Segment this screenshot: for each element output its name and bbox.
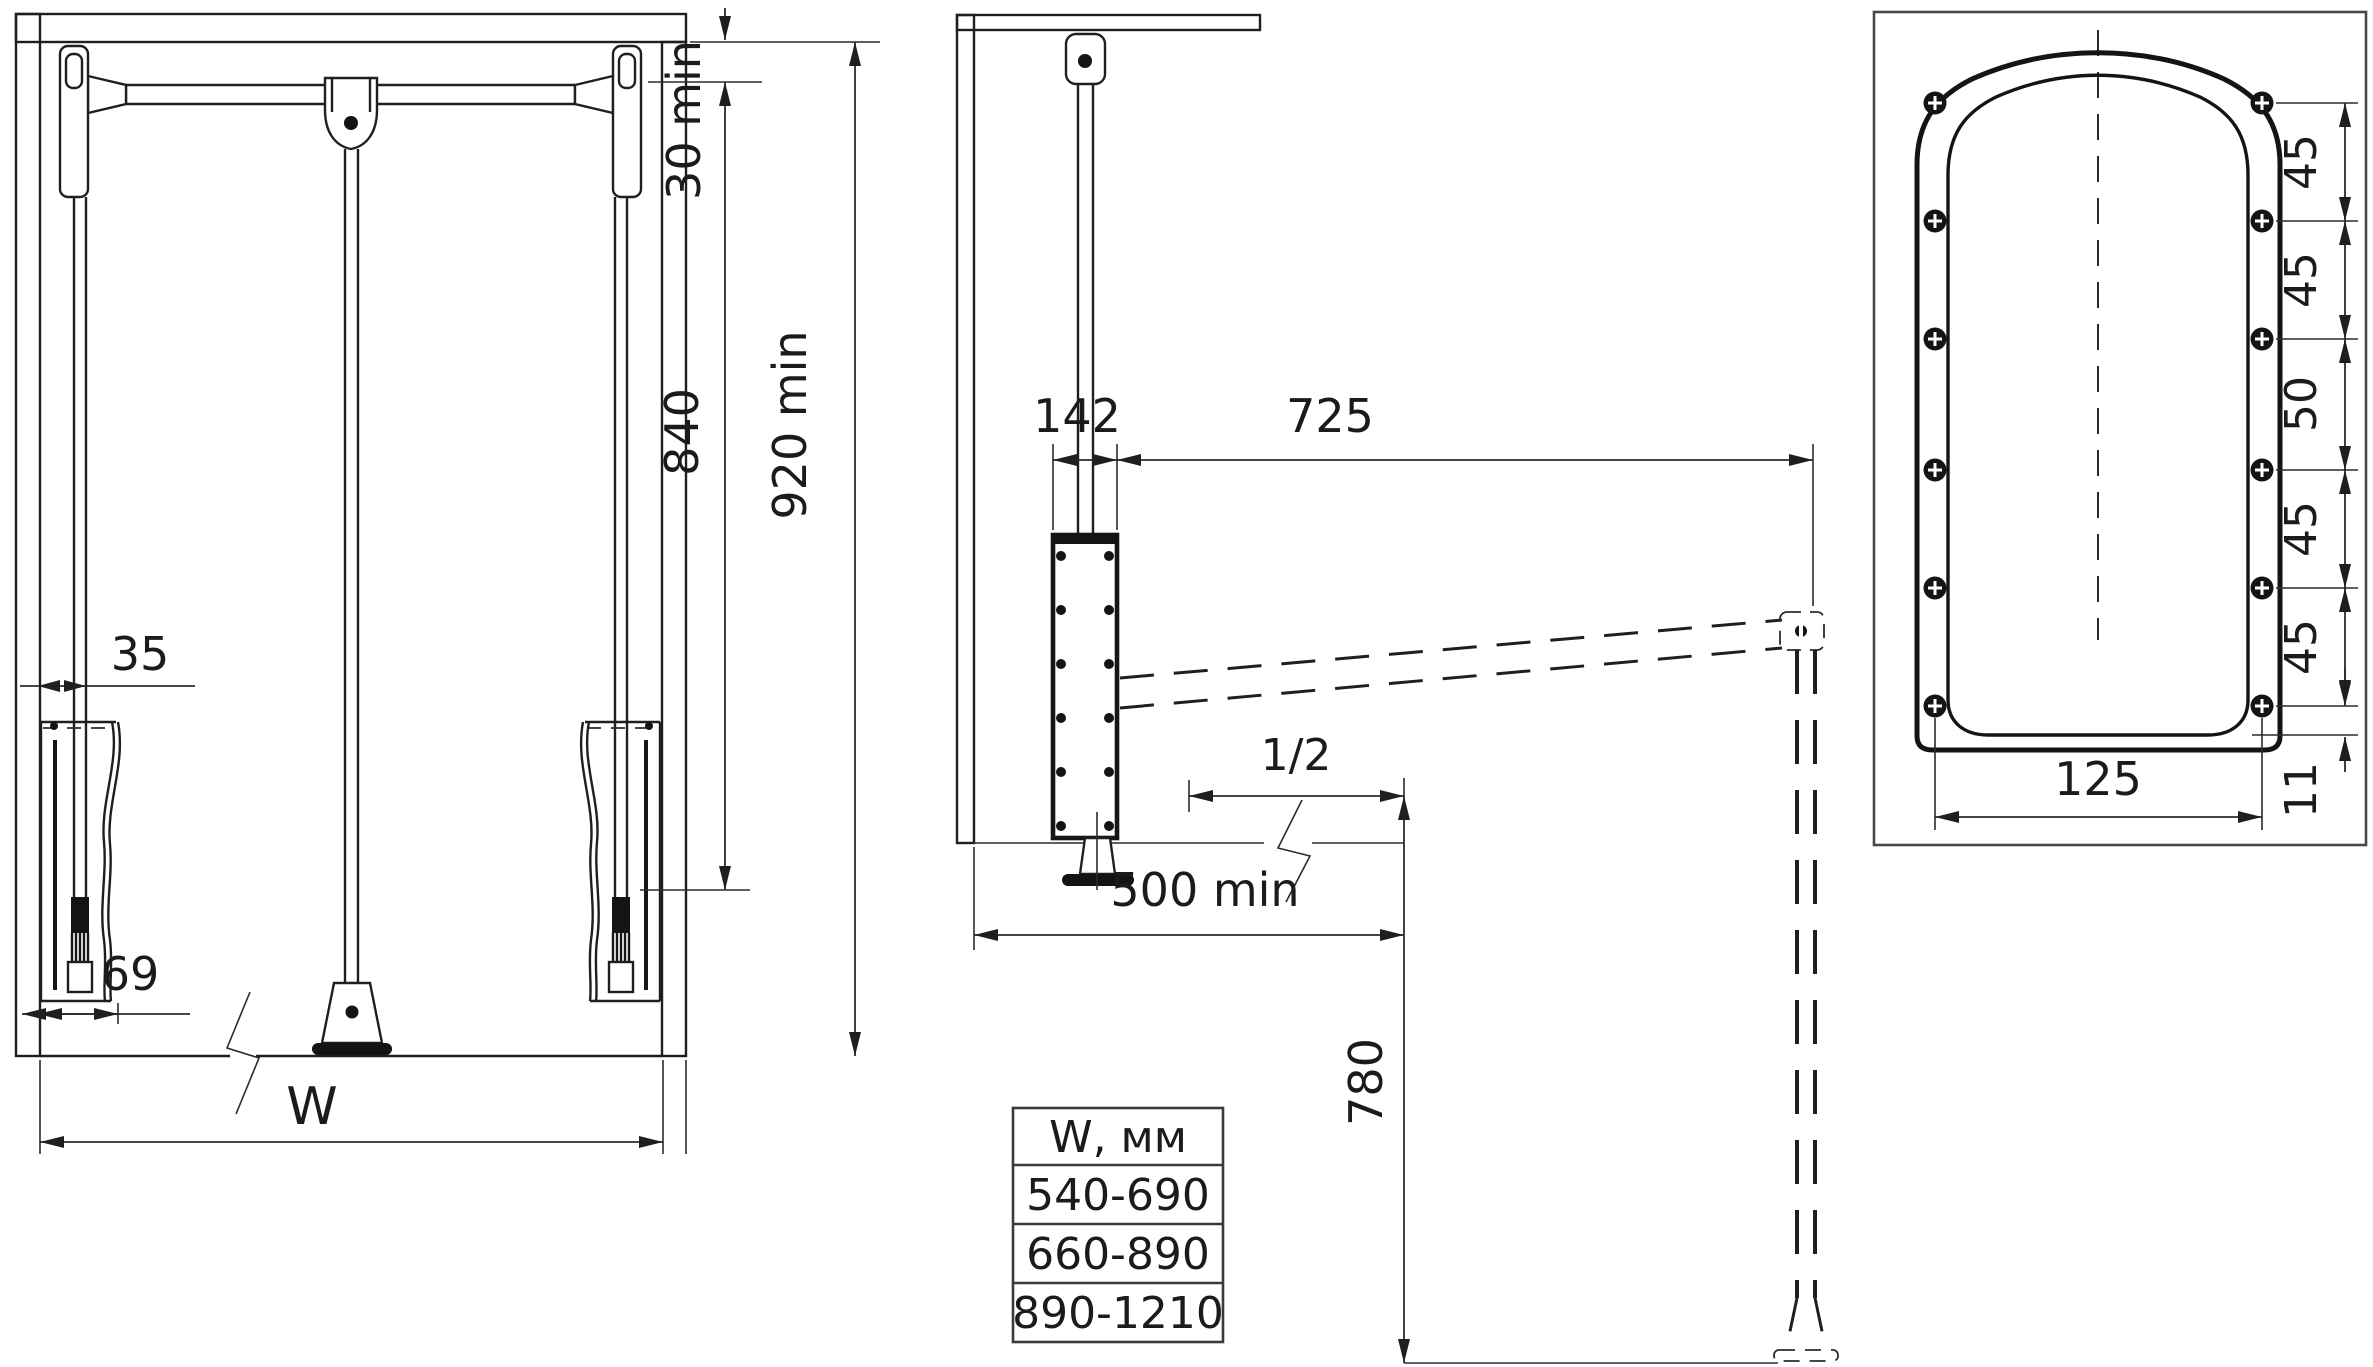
pivot-dot (344, 116, 358, 130)
dim-label-11: 11 (2276, 762, 2327, 818)
dim-lowered-height: 780 (1339, 778, 1404, 1363)
cabinet-top-panel-side (957, 15, 1260, 30)
center-bracket (325, 78, 377, 149)
rail-left-cone (88, 76, 126, 113)
spring-block (71, 897, 89, 933)
dim-label-840: 840 (655, 388, 709, 476)
dim-min-height: 920 min (763, 42, 855, 1056)
dim-label-w: W (286, 1077, 337, 1137)
dim-arm-drop: 840 (640, 82, 750, 890)
lift-mechanism-body (1053, 535, 1134, 886)
side-view: 142 725 1/2 500 min 780 (957, 15, 1838, 1363)
dim-min-depth: 500 min (974, 847, 1404, 950)
dim-label-45-2: 45 (2276, 252, 2327, 308)
table-row: 540-690 (1026, 1170, 1210, 1221)
cabinet-left-wall (16, 14, 40, 1056)
dim-label-725: 725 (1286, 389, 1374, 443)
right-lift-arm (615, 197, 627, 897)
dim-label-780: 780 (1339, 1038, 1393, 1126)
table-row: 660-890 (1026, 1229, 1210, 1280)
dim-label-920min: 920 min (763, 330, 817, 519)
dim-extension-reach: 725 (1117, 389, 1813, 606)
spring-coil (613, 933, 629, 962)
dim-label-45-1: 45 (2276, 134, 2327, 190)
cabinet-back-wall (957, 15, 974, 843)
cabinet-top-panel (16, 14, 686, 42)
dim-label-50: 50 (2276, 376, 2327, 432)
technical-drawing-page: 35 69 W 30 min 840 (0, 0, 2373, 1367)
spring-coil (72, 933, 88, 962)
dim-bracket-depth: 69 (22, 947, 190, 1024)
dim-label-500min: 500 min (1110, 863, 1299, 917)
center-pole (312, 149, 392, 1055)
foot-base-plate (312, 1043, 392, 1055)
top-right-bracket (613, 46, 641, 197)
top-left-bracket (60, 46, 88, 197)
dim-label-45-4: 45 (2276, 619, 2327, 675)
ceiling-bracket (1066, 34, 1105, 84)
dim-label-30min: 30 min (657, 40, 711, 200)
wardrobe-lift-drawing: 35 69 W 30 min 840 (0, 0, 2373, 1367)
front-view: 35 69 W 30 min 840 (16, 8, 880, 1154)
spring-block (612, 897, 630, 933)
extended-rail-dashed (1120, 612, 1838, 1361)
dim-label-142: 142 (1033, 389, 1121, 443)
lowered-foot (1774, 1350, 1838, 1361)
foot-screw-dot (346, 1006, 359, 1019)
lower-right-bracket (581, 722, 660, 1001)
table-header: W, мм (1049, 1112, 1187, 1163)
width-size-table: W, мм 540-690 660-890 890-1210 (1012, 1108, 1224, 1342)
dim-top-clearance: 30 min (648, 8, 880, 200)
dim-label-45-3: 45 (2276, 501, 2327, 557)
rail-right-cone (575, 76, 613, 113)
dim-wall-clearance: 35 (20, 627, 195, 692)
break-symbol (227, 992, 259, 1114)
dim-label-half: 1/2 (1261, 730, 1332, 781)
dim-width-w: W (40, 1060, 686, 1154)
dim-label-69: 69 (101, 947, 160, 1001)
table-row: 890-1210 (1012, 1288, 1224, 1339)
dim-label-125: 125 (2054, 752, 2142, 806)
pivot-dot (1078, 54, 1092, 68)
dim-label-35: 35 (111, 627, 170, 681)
left-lift-arm (74, 197, 86, 897)
suspension-rod (1078, 84, 1093, 535)
mounting-plate-view: 45 45 50 45 45 11 125 (1874, 12, 2366, 845)
